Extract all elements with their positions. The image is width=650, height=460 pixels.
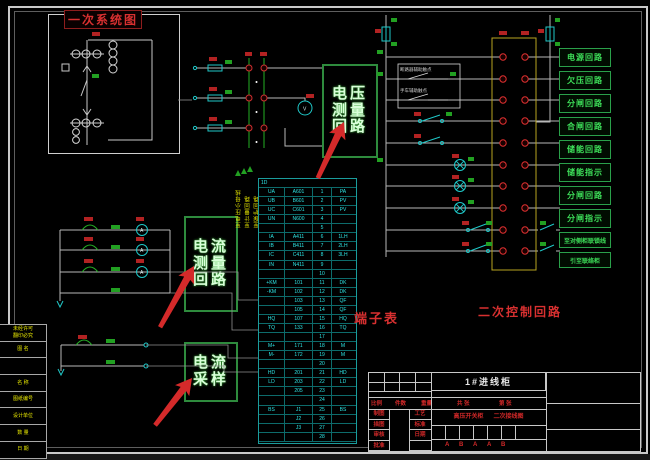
terminal-row: 10 <box>259 270 356 279</box>
title-left-label: 制图 <box>369 409 389 420</box>
terminal-cell: 11 <box>313 279 332 287</box>
terminal-strip-box <box>492 38 536 270</box>
terminal-cell: PV <box>332 197 354 205</box>
terminal-cell: 18 <box>313 342 332 350</box>
terminal-cell: 101 <box>285 279 313 287</box>
current-sampling-callout: 电流采样 <box>184 342 238 402</box>
terminal-cell: J2 <box>285 415 313 423</box>
current-sampling-circuit <box>56 335 191 397</box>
terminal-cell: HQ <box>259 315 285 323</box>
circuit-box-label: 引至联络柜 <box>559 252 611 268</box>
current-measurement-callout: 电流测量回路 <box>184 216 238 312</box>
terminal-cell <box>285 270 313 278</box>
terminal-cell: 15 <box>313 315 332 323</box>
voltage-measurement-callout: 电压测量回路 <box>322 64 378 158</box>
title-mid-label: 日期 <box>409 430 431 441</box>
title-block-mid-labels: 工艺标准日期 <box>409 409 431 451</box>
terminal-row: 10514QF <box>259 306 356 315</box>
callout-line: 采样 <box>193 372 229 389</box>
terminal-cell <box>332 215 354 223</box>
terminal-cell: 4 <box>313 215 332 223</box>
terminal-cell <box>259 360 285 368</box>
terminal-cell: 1 <box>313 188 332 196</box>
terminal-row: UBB6012PV <box>259 197 356 206</box>
terminal-cell: HD <box>259 369 285 377</box>
revision-letter: A <box>445 442 449 448</box>
left-table-row: 数 量 <box>0 425 46 442</box>
terminal-cell: HQ <box>332 315 354 323</box>
terminal-cell <box>259 297 285 305</box>
circuit-box-label: 分闸回路 <box>559 186 611 205</box>
title-left-label: 描图 <box>369 420 389 431</box>
terminal-cell: LD <box>259 378 285 386</box>
terminal-cell: 26 <box>313 415 332 423</box>
terminal-cell: M <box>332 342 354 350</box>
left-table-row <box>0 358 46 375</box>
callout-line: 电压 <box>332 86 368 103</box>
terminal-cell: 22 <box>313 378 332 386</box>
terminal-cell: 13 <box>313 297 332 305</box>
callout-line: 回路 <box>193 272 229 289</box>
ct-symbols <box>82 225 98 272</box>
revision-letter: A <box>473 442 477 448</box>
terminal-row: J327 <box>259 424 356 433</box>
terminal-cell: 102 <box>285 288 313 296</box>
circuit-box-label: 电源回路 <box>559 48 611 67</box>
terminal-cell <box>259 396 285 404</box>
title-left-label: 审核 <box>369 430 389 441</box>
left-table-row: 名 称 <box>0 375 46 392</box>
terminal-cell: BS <box>332 406 354 414</box>
terminal-cell: 107 <box>285 315 313 323</box>
terminal-row: 10313QF <box>259 297 356 306</box>
terminal-cell: 171 <box>285 342 313 350</box>
cabinet-title: 1#进线柜 <box>431 373 546 391</box>
svg-text:A: A <box>140 228 144 234</box>
callout-line: 测量 <box>193 256 229 273</box>
terminal-cell <box>285 396 313 404</box>
terminal-cell: DK <box>332 279 354 287</box>
terminal-cell: 2 <box>313 197 332 205</box>
terminal-cell: 12 <box>313 288 332 296</box>
ct-symbols <box>72 41 117 143</box>
terminal-cell: 133 <box>285 324 313 332</box>
terminal-cell: 16 <box>313 324 332 332</box>
terminal-cell <box>332 261 354 269</box>
one-line-diagram <box>48 14 178 152</box>
svg-text:A: A <box>140 270 144 276</box>
terminal-cell <box>259 415 285 423</box>
terminal-cell: 28 <box>313 433 332 441</box>
terminal-cell: PA <box>332 188 354 196</box>
left-table-row: 日 期 <box>0 442 46 459</box>
terminal-cell: 103 <box>285 297 313 305</box>
cad-drawing-canvas: 一次系统图 <box>0 0 650 460</box>
circuit-function-labels: 电源回路欠压回路分闸回路合闸回路储能回路储能指示分闸回路分闸指示至对侧柜联锁线引… <box>559 48 611 272</box>
terminal-cell: A601 <box>285 188 313 196</box>
terminal-cell <box>259 424 285 432</box>
terminal-cell: IN <box>259 261 285 269</box>
terminal-cell: HD <box>332 369 354 377</box>
terminal-cell <box>285 360 313 368</box>
title-block-center-text: 高压开关柜二次接线图 <box>431 411 546 420</box>
terminal-cell: 17 <box>313 333 332 341</box>
aux-contact-label-2: 手车辅助触点 <box>400 87 427 94</box>
left-parts-table: 未经许可 翻印必究图 名名 称图纸编号设计单位数 量日 期 <box>0 324 47 459</box>
terminal-cell: C601 <box>285 206 313 214</box>
terminal-cell <box>259 433 285 441</box>
revision-letter: A <box>487 442 491 448</box>
terminal-row: HD20121HD <box>259 369 356 378</box>
terminal-row: TQ13316TQ <box>259 324 356 333</box>
terminal-row: HQ10715HQ <box>259 315 356 324</box>
terminal-cell: 3 <box>313 206 332 214</box>
terminal-cell: B411 <box>285 242 313 250</box>
terminal-cell: A411 <box>285 233 313 241</box>
title-center-label: 二次接线图 <box>494 411 524 420</box>
terminal-row: 24 <box>259 396 356 405</box>
title-center-label: 高压开关柜 <box>453 411 483 420</box>
svg-text:A: A <box>140 248 144 254</box>
terminal-cell <box>332 433 354 441</box>
terminal-cell: 1LH <box>332 233 354 241</box>
terminal-row: IAA41161LH <box>259 233 356 242</box>
terminal-cell <box>285 224 313 232</box>
canvas-bottom-edge <box>0 454 650 460</box>
terminal-cell: 27 <box>313 424 332 432</box>
voltmeter-letter: V <box>303 107 307 113</box>
terminal-row: 20523 <box>259 387 356 396</box>
terminal-cell: 14 <box>313 306 332 314</box>
terminal-cell: 20 <box>313 360 332 368</box>
terminal-cell: UC <box>259 206 285 214</box>
terminal-cell: 23 <box>313 387 332 395</box>
terminal-cell: PV <box>332 206 354 214</box>
terminal-table: 1D UAA6011PAUBB6012PVUCC6013PVUNN60045IA… <box>258 178 357 444</box>
terminal-cell: 105 <box>285 306 313 314</box>
terminal-row: INN4119 <box>259 261 356 270</box>
terminal-cell: 8 <box>313 251 332 259</box>
title-info-label: 共 张 <box>457 399 470 407</box>
terminal-cell <box>259 306 285 314</box>
terminal-cell: N600 <box>285 215 313 223</box>
terminal-cell: 3LH <box>332 251 354 259</box>
terminal-row: 20 <box>259 360 356 369</box>
circuit-box-label: 储能指示 <box>559 163 611 182</box>
terminal-row: BSJ125BS <box>259 406 356 415</box>
terminal-cell: 201 <box>285 369 313 377</box>
terminal-cell: M- <box>259 351 285 359</box>
secondary-circuit-label: 二次控制回路 <box>478 303 562 320</box>
terminal-cell: UB <box>259 197 285 205</box>
revision-letters: ABAAB <box>431 439 546 451</box>
terminal-row: 17 <box>259 333 356 342</box>
callout-line: 电流 <box>193 239 229 256</box>
terminal-cell: 7 <box>313 242 332 250</box>
terminal-cell: QF <box>332 306 354 314</box>
terminal-cell: 6 <box>313 233 332 241</box>
title-info-label: 比例 <box>371 399 382 407</box>
terminal-cell: N411 <box>285 261 313 269</box>
current-measurement-circuit: A A A <box>56 205 191 320</box>
terminal-cell: +KM <box>259 279 285 287</box>
terminal-row: M+17118M <box>259 342 356 351</box>
terminal-cell: IC <box>259 251 285 259</box>
terminal-cell: TQ <box>259 324 285 332</box>
terminal-cell: J3 <box>285 424 313 432</box>
left-table-row: 图 名 <box>0 342 46 359</box>
left-table-row: 设计单位 <box>0 408 46 425</box>
terminal-cell: LD <box>332 378 354 386</box>
terminal-cell: 19 <box>313 351 332 359</box>
terminal-table-header: 1D <box>259 179 356 188</box>
terminal-cell <box>332 424 354 432</box>
terminal-cell: 203 <box>285 378 313 386</box>
terminal-row: ICC41183LH <box>259 251 356 260</box>
terminal-cell: 24 <box>313 396 332 404</box>
terminal-cell: IB <box>259 242 285 250</box>
circuit-box-label: 至对侧柜联锁线 <box>559 232 611 248</box>
control-contacts-and-lamps <box>419 115 555 253</box>
terminal-cell: C411 <box>285 251 313 259</box>
terminal-cell <box>259 333 285 341</box>
terminal-cell <box>259 270 285 278</box>
ground-arrow-icon <box>57 301 63 307</box>
circuit-box-label: 合闸回路 <box>559 117 611 136</box>
terminal-row: 28 <box>259 433 356 442</box>
title-block-left-labels: 制图描图审核批准 <box>369 409 389 451</box>
terminal-cell <box>332 415 354 423</box>
circuit-box-label: 分闸指示 <box>559 209 611 228</box>
terminal-cell <box>285 333 313 341</box>
title-info-label: 第 张 <box>499 399 512 407</box>
terminal-cell: 5 <box>313 224 332 232</box>
title-left-label: 批准 <box>369 441 389 452</box>
terminal-row: M-17219M <box>259 351 356 360</box>
terminal-row: J226 <box>259 415 356 424</box>
terminal-cell: 10 <box>313 270 332 278</box>
terminal-cell: -KM <box>259 288 285 296</box>
terminal-cell <box>332 360 354 368</box>
terminal-cell: 2LH <box>332 242 354 250</box>
secondary-control-circuit: 断路器辅助触点 手车辅助触点 <box>374 12 560 297</box>
terminal-row: IBB41172LH <box>259 242 356 251</box>
terminal-cell: J1 <box>285 406 313 414</box>
terminal-cell: B601 <box>285 197 313 205</box>
callout-line: 电流 <box>193 355 229 372</box>
title-block: 1#进线柜 比例件数重量共 张第 张 制图描图审核批准 工艺标准日期 高压开关柜… <box>368 372 641 452</box>
left-table-row: 未经许可 翻印必究 <box>0 325 46 342</box>
terminal-table-label: 端子表 <box>354 308 399 327</box>
circuit-box-label: 分闸回路 <box>559 94 611 113</box>
terminal-cell <box>332 270 354 278</box>
callout-line: 回路 <box>332 119 368 136</box>
terminal-strip-points <box>500 54 528 254</box>
left-table-row: 图纸编号 <box>0 392 46 409</box>
terminal-row: UAA6011PA <box>259 188 356 197</box>
title-info-label: 件数 <box>395 399 406 407</box>
terminal-cell: IA <box>259 233 285 241</box>
terminal-cell <box>259 224 285 232</box>
callout-line: 测量 <box>332 103 368 120</box>
title-mid-label: 标准 <box>409 420 431 431</box>
terminal-cell: 205 <box>285 387 313 395</box>
terminal-cell: BS <box>259 406 285 414</box>
terminal-cell <box>332 224 354 232</box>
terminal-cell: 21 <box>313 369 332 377</box>
wire-tag: 至电压小母线 <box>235 170 243 228</box>
terminal-cell <box>332 396 354 404</box>
terminal-cell: DK <box>332 288 354 296</box>
terminal-cell <box>332 333 354 341</box>
terminal-cell: QF <box>332 297 354 305</box>
terminal-row: 5 <box>259 224 356 233</box>
terminal-cell <box>259 387 285 395</box>
terminal-cell: 25 <box>313 406 332 414</box>
circuit-box-label: 储能回路 <box>559 140 611 159</box>
revision-letter: B <box>501 442 505 448</box>
revision-letter: B <box>459 442 463 448</box>
terminal-row: LD20322LD <box>259 378 356 387</box>
terminal-row: +KM10111DK <box>259 279 356 288</box>
terminal-cell: M+ <box>259 342 285 350</box>
terminal-cell <box>285 433 313 441</box>
title-mid-label: 工艺 <box>409 409 431 420</box>
terminal-cell: 9 <box>313 261 332 269</box>
aux-contact-label-1: 断路器辅助触点 <box>400 66 432 73</box>
terminal-cell: 172 <box>285 351 313 359</box>
terminal-row: UNN6004 <box>259 215 356 224</box>
terminal-row: -KM10212DK <box>259 288 356 297</box>
terminal-cell <box>332 387 354 395</box>
terminal-cell: TQ <box>332 324 354 332</box>
title-mid-label <box>409 441 431 452</box>
terminal-cell: UA <box>259 188 285 196</box>
terminal-row: UCC6013PV <box>259 206 356 215</box>
terminal-cell: UN <box>259 215 285 223</box>
wire-tag: 至计量回路 <box>244 170 252 228</box>
terminal-cell: M <box>332 351 354 359</box>
circuit-box-label: 欠压回路 <box>559 71 611 90</box>
